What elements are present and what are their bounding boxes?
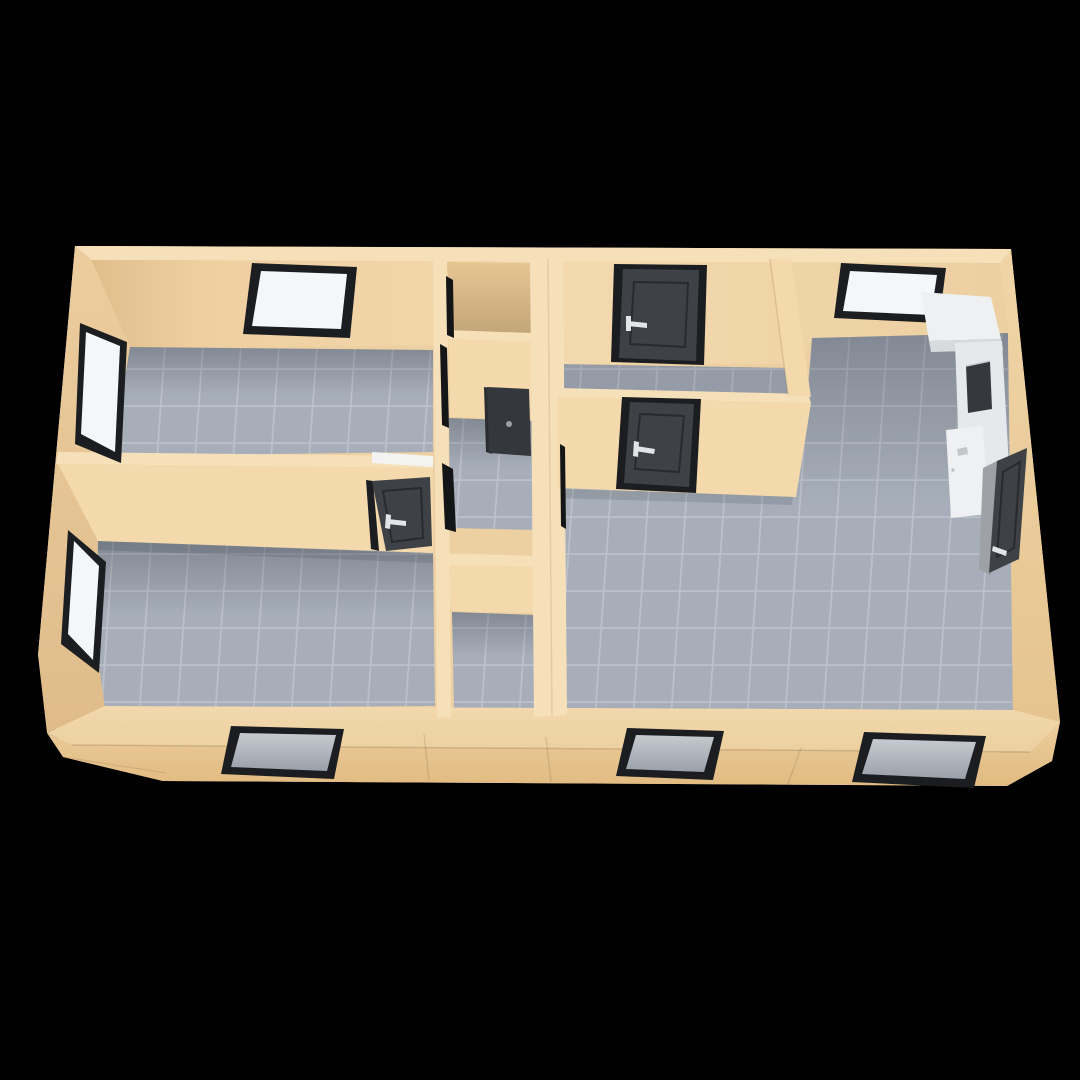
window-living-front-right [852,732,986,788]
floor-bedroom-2-shade [96,540,435,708]
window-glass [862,739,976,779]
floor-corridor-shade [452,612,537,710]
bathroom-corridor-wall-face [437,565,539,613]
building [38,246,1060,788]
window-living-front-left [616,728,724,780]
closet-interior-shade [447,262,534,334]
floorplan-render [0,0,1080,1080]
cabinet-knob [951,468,954,471]
door-knob [506,421,512,427]
window-bedroom-2-front [221,726,344,779]
entrance-door [611,264,707,365]
doorway-gap-closet [446,276,454,338]
window-glass [252,271,347,329]
window-bedroom-1-back [243,263,357,338]
counter-appliance-inset [966,361,992,413]
bathroom-open-door [484,387,531,456]
hall-door [616,397,701,493]
counter-back-top [921,292,1001,341]
window-bedroom-1-left [75,323,127,463]
window-glass [231,733,336,771]
doorway-gap-entry [560,444,566,529]
window-glass [626,735,714,772]
window-glass [81,332,120,452]
floor-bedroom-1-shade [112,347,433,456]
